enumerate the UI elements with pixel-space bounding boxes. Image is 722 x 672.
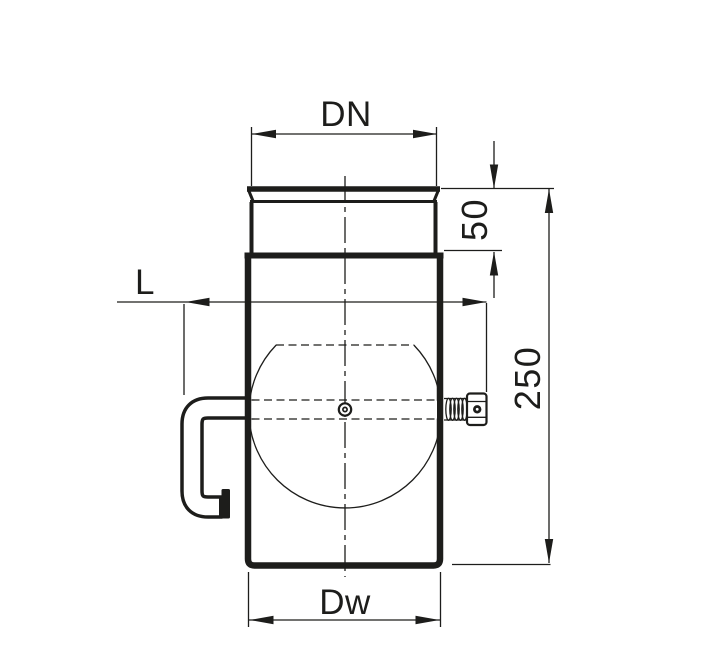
bolt-head-hole-center [476,408,479,411]
handle-outline [192,408,250,507]
dimdw-arrow-right [416,616,440,624]
diml-arrow-right [463,298,487,306]
technical-drawing-canvas: DN [0,0,722,672]
dim50-arrow-down [490,165,498,189]
diml-arrow-left [186,298,210,306]
handle-end-lip [222,489,231,519]
damper-pivot [339,403,351,415]
handle [192,408,250,519]
axle-bolt [444,394,487,426]
dimdw-arrow-left [250,616,274,624]
dim250-arrow-down [545,539,553,563]
dn-label: DN [320,95,372,134]
dimdw-label: Dw [319,583,371,622]
pipe-spigot [247,188,440,253]
dimension-50: 50 [441,141,554,298]
dim250-arrow-up [545,189,553,213]
bolt-thread-coil [446,398,467,420]
dimension-dw: Dw [249,572,441,627]
flue-pipe-damper-drawing: DN [0,0,722,672]
dim250-label: 250 [507,346,548,411]
dn-arrow-left [252,130,276,138]
dimension-250: 250 [452,189,553,565]
pivot-center [343,407,347,411]
dimension-dn: DN [252,95,438,186]
diml-label: L [135,263,155,302]
dn-arrow-right [413,130,437,138]
spigot-fill [249,188,437,252]
dim50-label: 50 [454,198,495,241]
dim50-arrow-up [490,252,498,276]
